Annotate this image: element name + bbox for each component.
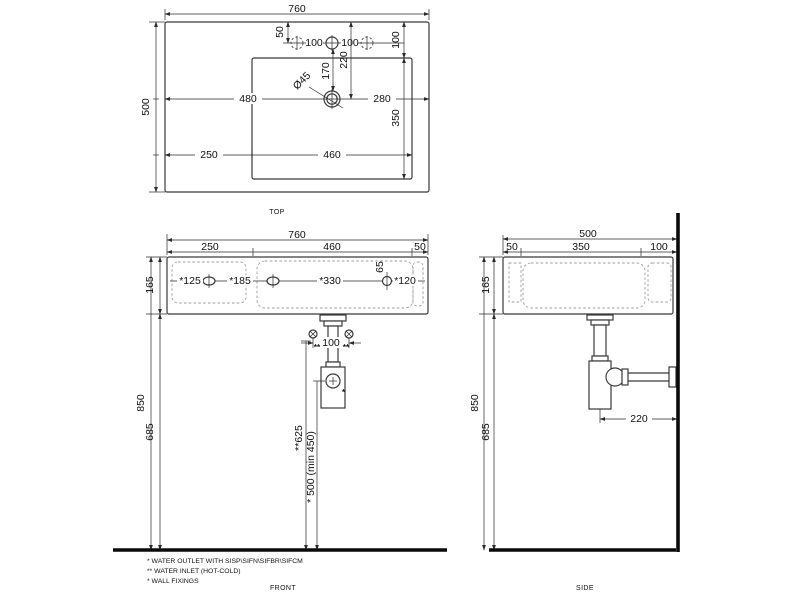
dim-hole-pitch-right: 100	[341, 37, 359, 49]
side-view: 500 50 350 100 850 165 685 220 SID	[469, 213, 678, 592]
dim-side-back-inset: 100	[650, 241, 668, 253]
side-view-label: SIDE	[576, 585, 594, 592]
dim-inset-right: 100	[390, 31, 402, 49]
water-inlet-right-symbol	[345, 330, 353, 338]
dim-front-height: 165	[144, 276, 156, 294]
trap-collar-side	[592, 356, 608, 361]
washbasin-installation-drawing: 760 500 100 100 50 100 350 220 170	[0, 0, 800, 600]
dim-front-width: 760	[288, 229, 306, 241]
note-water-outlet: * WATER OUTLET WITH SISP\SIFN\SIFBR\SIFC…	[147, 558, 303, 565]
dim-fix1: *125	[179, 275, 201, 287]
dim-fix3: *330	[319, 275, 341, 287]
dim-side-height: 165	[480, 276, 492, 294]
wall-flange-side	[669, 367, 676, 387]
dim-drain-to-right: 280	[373, 93, 391, 105]
dim-side-front-lip: 50	[506, 241, 518, 253]
footnotes: * WATER OUTLET WITH SISP\SIFN\SIFBR\SIFC…	[147, 558, 303, 585]
dim-fix-drop: 65	[374, 261, 386, 273]
trap-elbow-side	[606, 368, 624, 386]
dim-side-rim-height: 850	[469, 394, 481, 412]
dim-side-underside: 685	[480, 423, 492, 441]
drain-flange-step-side	[591, 320, 609, 325]
dim-drain-from-top: 220	[338, 51, 350, 69]
note-wall-fixings: * WALL FIXINGS	[147, 578, 199, 585]
front-view-label: FRONT	[270, 585, 296, 592]
dim-left-to-drain: 480	[239, 93, 257, 105]
dim-front-rim-height: 850	[135, 394, 147, 412]
dim-inlet-pitch: 100	[322, 337, 340, 349]
technical-drawing-sheet: 760 500 100 100 50 100 350 220 170	[0, 0, 800, 600]
tailpipe-side	[594, 325, 606, 356]
inlet-mark-left: **	[314, 343, 321, 352]
inlet-mark-right: **	[343, 343, 350, 352]
front-view: 760 250 460 50 *125 *185 *330 *120 65 85…	[113, 229, 447, 592]
dim-bowl-width-top: 460	[323, 149, 341, 161]
dim-side-bowl-depth: 350	[572, 241, 590, 253]
dim-side-depth: 500	[579, 228, 597, 240]
dim-inlet-height: **625	[293, 425, 305, 451]
dim-front-right-edge: 50	[414, 241, 426, 253]
dim-bowl-depth-top: 350	[390, 109, 402, 127]
dim-shelf-top: 250	[200, 149, 218, 161]
dim-drain-from-holes: 170	[320, 62, 332, 80]
dim-front-underside: 685	[144, 423, 156, 441]
dim-front-shelf: 250	[201, 241, 219, 253]
dim-trap-to-wall: 220	[630, 413, 648, 425]
water-inlet-left-symbol	[309, 330, 317, 338]
drain-flange-side	[587, 315, 613, 320]
dim-top-width: 760	[288, 3, 306, 15]
basin-outline-side	[503, 257, 673, 314]
top-view: 760 500 100 100 50 100 350 220 170	[140, 3, 429, 216]
drain-flange-step-front	[324, 321, 342, 326]
note-water-inlet: ** WATER INLET (HOT-COLD)	[147, 568, 241, 575]
trap-collar-front	[326, 362, 340, 367]
top-view-label: TOP	[269, 209, 284, 216]
dim-outlet-height: * 500 (min 450)	[305, 431, 317, 503]
dim-fix2: *185	[229, 275, 251, 287]
dim-fix4: *120	[394, 275, 416, 287]
dim-hole-pitch-left: 100	[305, 37, 323, 49]
pipe-ring-side	[622, 369, 628, 385]
dim-top-depth: 500	[140, 98, 152, 116]
dim-hole-edge: 50	[274, 26, 286, 38]
bottle-trap-side	[589, 361, 611, 409]
dim-front-bowl: 460	[323, 241, 341, 253]
drain-flange-front	[320, 315, 346, 321]
